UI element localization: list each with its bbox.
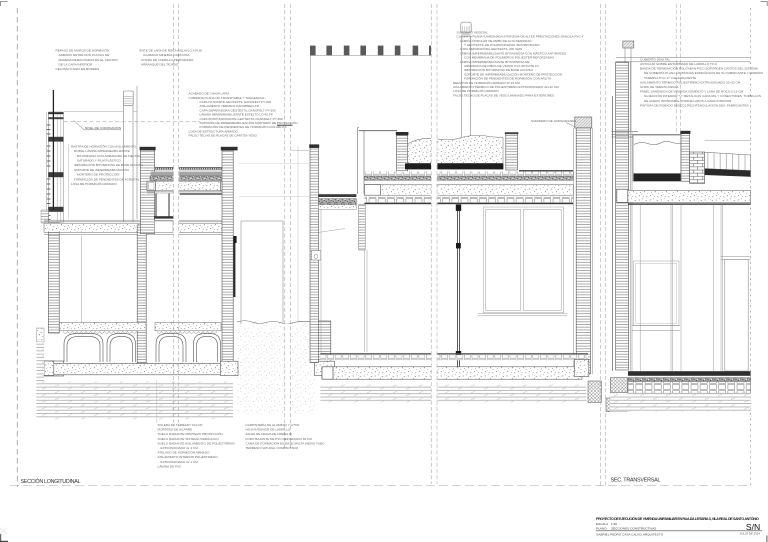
svg-text:ANTICAJO SOBRE ENTARIMADO DE L: ANTICAJO SOBRE ENTARIMADO DE LADRILLO TV… [640, 62, 717, 66]
svg-text:S/N: S/N [746, 522, 760, 532]
svg-text:SECCIONES CONSTRUCTIVAS: SECCIONES CONSTRUCTIVAS [611, 526, 656, 530]
svg-text:ATELADO DE HORMIGÓN ARMADO: ATELADO DE HORMIGÓN ARMADO [158, 450, 210, 455]
svg-text:SUJECCIÓN INTERIOR "U" METÁLIC: SUJECCIÓN INTERIOR "U" METÁLICAS CADA MI… [644, 93, 761, 98]
svg-text:SOLERA DE TERRAZO 'FALCO': SOLERA DE TERRAZO 'FALCO' [158, 423, 204, 427]
svg-text:ARRANQUE DEL TEJADO: ARRANQUE DEL TEJADO [141, 62, 179, 66]
svg-text:CAMA DE FORMACIÓN EN BASE MULT: CAMA DE FORMACIÓN EN BASE MULTA MEDIO TU… [246, 440, 326, 445]
svg-text:AISLAMIENTO TÉRMICO POLIESTIRE: AISLAMIENTO TÉRMICO POLIESTIRENO EXTRUSI… [640, 79, 741, 84]
svg-text:TERRENO NATURAL COMPACTADO: TERRENO NATURAL COMPACTADO [246, 446, 299, 450]
svg-text:CITARA DE LADRILLO PERFORADO: CITARA DE LADRILLO PERFORADO [141, 58, 194, 62]
svg-text:RASTRA DE HORMIGÓN CON AISLAMI: RASTRA DE HORMIGÓN CON AISLAMIENTO [71, 143, 137, 148]
svg-text:SOPORTE DE IMPERMEABILIZACIÓN: SOPORTE DE IMPERMEABILIZACIÓN [74, 167, 129, 172]
svg-text:FORO BAJANTE DE PVC REFORZADO: FORO BAJANTE DE PVC REFORZADO 40 CM [246, 437, 313, 441]
svg-text:SECCIÓN LONGITUDINAL: SECCIÓN LONGITUDINAL [21, 478, 81, 485]
svg-text:ZANJA DE GRAVA DE DRENAJE: ZANJA DE GRAVA DE DRENAJE [246, 432, 292, 436]
svg-text:CARPINTERÍA DE ALUMINIO Y LITH: CARPINTERÍA DE ALUMINIO Y LITHA [246, 423, 301, 427]
svg-text:MORTERO DE AGARRE: MORTERO DE AGARRE [158, 428, 193, 432]
svg-text:PROYECTO DE EJECUCIÓN DE VIVIE: PROYECTO DE EJECUCIÓN DE VIVIENDA UNIFAM… [596, 516, 759, 521]
svg-text:EXTRUSIONADO Gr 4 CM: EXTRUSIONADO Gr 4 CM [161, 446, 199, 450]
svg-text:MADERA REMACHADAS EN EL CENTRO: MADERA REMACHADAS EN EL CENTRO [59, 58, 119, 62]
svg-text:SEC. TRANSVERSAL: SEC. TRANSVERSAL [611, 478, 661, 484]
svg-text:BANDA DE TERMINACIÓN POLITABAN: BANDA DE TERMINACIÓN POLITABAN PICO SOPO… [640, 66, 759, 71]
svg-text:TANENSA PYC-17 CAESARQUESTE: TANENSA PYC-17 CAESARQUESTE [644, 76, 696, 80]
svg-text:DOBLE LÁMINA IMPERMEABILIZANTE: DOBLE LÁMINA IMPERMEABILIZANTE [74, 149, 130, 153]
svg-text:DE ACERO INOXIDABLE ATORNILLAD: DE ACERO INOXIDABLE ATORNILLADOS A CARA … [644, 99, 732, 103]
svg-text:REPASO DE MUROS DE HORMIGÓN: REPASO DE MUROS DE HORMIGÓN [56, 48, 110, 53]
svg-text:SATURADO Y FILM PLÁSTICO: SATURADO Y FILM PLÁSTICO [77, 159, 121, 163]
svg-text:AISLAMIENTO INTERIOR POLIESTIR: AISLAMIENTO INTERIOR POLIESTIRENO [158, 455, 219, 459]
svg-text:SUMIDERO DE GORGODANES: SUMIDERO DE GORGODANES [531, 119, 576, 123]
svg-text:IMPRIMACIÓN BITUMINOSA DE BASE: IMPRIMACIÓN BITUMINOSA DE BASE ACUOSA [74, 162, 144, 167]
svg-text:FORMACIÓN DE PENDIENTES DE ACR: FORMACIÓN DE PENDIENTES DE ACRISTAL [74, 176, 140, 181]
svg-text:FALSO TECHO DE PLACAS DE CARTÓ: FALSO TECHO DE PLACAS DE CARTÓN-YESO [189, 133, 258, 138]
svg-text:BITUMINOSA CON ARMADURA DE FIE: BITUMINOSA CON ARMADURA DE FIELTRO [77, 154, 141, 158]
svg-text:LOSA DE HORMIGÓN ARMADO: LOSA DE HORMIGÓN ARMADO [71, 181, 117, 186]
svg-text:LÁMINA DE PVC: LÁMINA DE PVC [158, 464, 182, 468]
svg-text:GNRC DE TERRACANILLA: GNRC DE TERRACANILLA [640, 85, 679, 89]
svg-text:PANEL SANDWICH DE VENDIDA CEME: PANEL SANDWICH DE VENDIDA CEMENTO Y LANA… [640, 90, 744, 94]
svg-text:ARMADO ENTRE DOS PLACAS DE: ARMADO ENTRE DOS PLACAS DE [59, 53, 110, 57]
svg-text:CELOSÍA FIJADA EN BORDES: CELOSÍA FIJADA EN BORDES [56, 67, 100, 71]
svg-text:MORTERO DE PROTECCIÓN: MORTERO DE PROTECCIÓN [77, 172, 119, 177]
svg-text:CUBIERTO 30X8 TAL: CUBIERTO 30X8 TAL [640, 57, 670, 61]
svg-text:JULIO DE 2014: JULIO DE 2014 [740, 531, 761, 535]
svg-text:NIVEL DE CORONACIÓN: NIVEL DE CORONACIÓN [85, 125, 121, 130]
svg-text:DE CUBIERTA PLANA AJUSTADAS ES: DE CUBIERTA PLANA AJUSTADAS ESPECÍFICAS … [644, 71, 763, 75]
svg-text:SUELO RADIANTE AISLAMIENTO DE: SUELO RADIANTE AISLAMIENTO DE POLIESTIRE… [158, 441, 236, 445]
svg-text:HOJA INTERIOR DE LADRILLO: HOJA INTERIOR DE LADRILLO [246, 428, 291, 432]
svg-text:EXTRUSIONADO Gr 4 CM: EXTRUSIONADO Gr 4 CM [161, 460, 199, 464]
svg-text:PLANO:: PLANO: [596, 526, 607, 530]
svg-text:SUELO RADIANTE MORTERO PROTECC: SUELO RADIANTE MORTERO PROTECCIÓN [158, 431, 223, 436]
svg-text:GABRIEL PEDRO CASA CALVO, ARQU: GABRIEL PEDRO CASA CALVO, ARQUITECTO [596, 532, 664, 536]
svg-text:SUELO RADIANTE SISTEMA HIDRÁUL: SUELO RADIANTE SISTEMA HIDRÁULICO [158, 437, 220, 441]
svg-text:DE LA CARA INFERIOR: DE LA CARA INFERIOR [59, 62, 93, 66]
svg-text:ENTE DE LANA DE ROCA AISLAVLO: ENTE DE LANA DE ROCA AISLAVLO A R-30 [140, 49, 203, 53]
svg-text:ACABADO MINERAL CAPA FINA: ACABADO MINERAL CAPA FINA [143, 53, 190, 57]
svg-text:FALSO TECHO DE PLACAS DE YESO: FALSO TECHO DE PLACAS DE YESO LAMINADO P… [453, 93, 554, 97]
svg-text:PINTURA DE ROBADO DESCOL PECHT: PINTURA DE ROBADO DESCOL PECHTENCULACIÓN… [640, 102, 749, 107]
